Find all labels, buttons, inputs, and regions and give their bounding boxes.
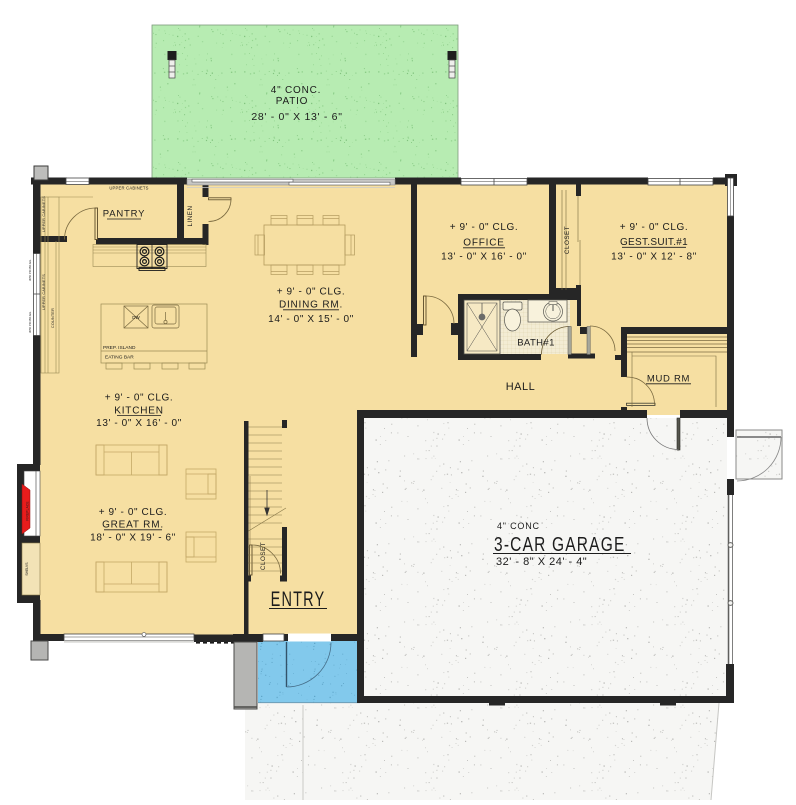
svg-text:DINING RM.: DINING RM. (279, 300, 343, 311)
svg-text:LINEN: LINEN (187, 205, 194, 226)
svg-text:OFFICE: OFFICE (463, 238, 504, 249)
svg-text:CLOSET: CLOSET (564, 226, 571, 254)
svg-text:13' - 0" X 12' - 8": 13' - 0" X 12' - 8" (611, 252, 697, 263)
svg-text:HALL: HALL (506, 381, 536, 393)
svg-text:4" CONC.: 4" CONC. (271, 85, 322, 96)
svg-text:COUNTER: COUNTER (51, 308, 55, 328)
svg-text:+ 9' - 0" CLG.: + 9' - 0" CLG. (277, 287, 346, 298)
svg-text:+ 9' - 0" CLG.: + 9' - 0" CLG. (620, 222, 689, 233)
svg-text:BATH#1: BATH#1 (517, 338, 555, 349)
svg-text:GREAT RM.: GREAT RM. (102, 520, 164, 531)
svg-text:18' - 0" X 19' - 6": 18' - 0" X 19' - 6" (90, 533, 176, 544)
svg-text:CLOSET: CLOSET (260, 542, 267, 570)
svg-text:PATIO: PATIO (276, 96, 309, 107)
svg-text:ENTRY: ENTRY (271, 587, 326, 610)
svg-text:13' - 0" X 16' - 0": 13' - 0" X 16' - 0" (441, 252, 527, 263)
svg-text:UPPER CABINETS: UPPER CABINETS (42, 274, 46, 310)
svg-text:13' - 0" X 16' - 0": 13' - 0" X 16' - 0" (96, 418, 182, 429)
svg-text:32' - 8" X 24' - 4": 32' - 8" X 24' - 4" (496, 556, 587, 568)
svg-text:+ 9' - 0" CLG.: + 9' - 0" CLG. (105, 393, 174, 404)
svg-text:3050 PIC.BD.GH.: 3050 PIC.BD.GH. (28, 311, 32, 333)
svg-text:KITCHEN: KITCHEN (114, 405, 164, 416)
svg-text:+ 9' - 0" CLG.: + 9' - 0" CLG. (450, 222, 519, 233)
svg-text:PREP. ISLAND: PREP. ISLAND (103, 345, 136, 351)
svg-text:14' - 0" X 15' - 0": 14' - 0" X 15' - 0" (268, 314, 354, 325)
svg-text:EATING BAR: EATING BAR (105, 355, 134, 361)
svg-text:3050 PIC.BD.GH.: 3050 PIC.BD.GH. (28, 259, 32, 281)
svg-text:UPPER CABINETS: UPPER CABINETS (109, 186, 148, 191)
svg-text:DW: DW (132, 315, 140, 320)
svg-text:3-CAR GARAGE: 3-CAR GARAGE (494, 533, 625, 555)
svg-text:MUD RM: MUD RM (647, 374, 690, 385)
svg-text:4" CONC: 4" CONC (497, 521, 540, 531)
svg-text:UPPER CABINETS: UPPER CABINETS (42, 196, 46, 232)
svg-text:+ 9' - 0" CLG.: + 9' - 0" CLG. (99, 507, 168, 518)
svg-text:FIREPLACE: FIREPLACE (26, 501, 30, 521)
svg-text:PANTRY: PANTRY (103, 209, 145, 220)
svg-text:GEST.SUIT.#1: GEST.SUIT.#1 (620, 237, 688, 248)
svg-text:SHELVS: SHELVS (25, 562, 29, 576)
svg-text:28' - 0" X 13' - 6": 28' - 0" X 13' - 6" (251, 111, 342, 123)
